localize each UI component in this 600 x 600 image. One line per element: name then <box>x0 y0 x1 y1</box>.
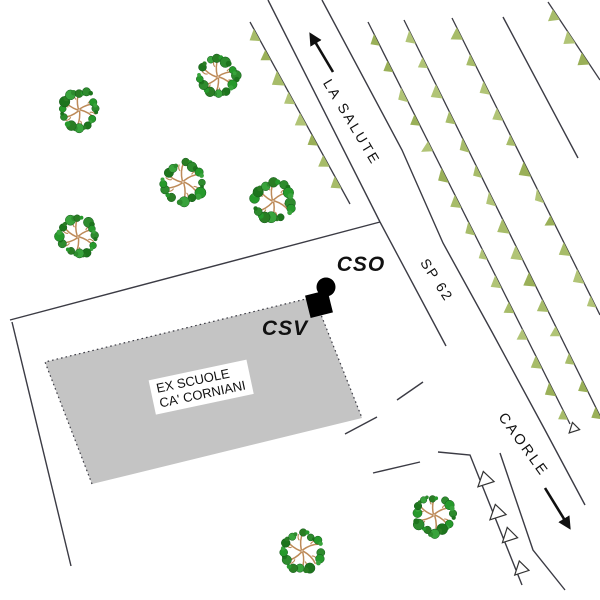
hedge-triangle <box>517 329 528 340</box>
road-and-boundary-lines <box>10 0 585 590</box>
hedge-triangle <box>418 57 428 68</box>
hedge-triangle <box>537 299 549 312</box>
arrow-to-la-salute <box>311 35 333 72</box>
white-triangle <box>511 559 529 575</box>
hedge-triangle <box>465 222 475 236</box>
white-triangle <box>566 421 579 433</box>
driveway-segment-1 <box>397 382 423 400</box>
hedge-triangle <box>431 84 443 98</box>
fence-polyline <box>438 452 522 585</box>
hedge-triangle <box>318 155 329 167</box>
site-label-cso: CSO <box>337 253 386 277</box>
hedge-triangle <box>565 353 575 365</box>
hedge-triangle <box>558 409 568 420</box>
hedge-triangle <box>438 168 449 183</box>
hedge-triangle <box>451 27 463 39</box>
tree-symbol <box>413 496 457 539</box>
hedge-triangle <box>559 242 571 256</box>
site-marker <box>305 278 335 318</box>
tree-symbol <box>250 177 296 222</box>
tree-symbol <box>196 54 241 98</box>
hedge-triangle <box>550 326 561 336</box>
hedge-triangle <box>295 113 307 126</box>
arrow-to-caorle <box>545 488 569 527</box>
hedge-triangle <box>506 135 516 146</box>
tree-symbol <box>280 529 325 574</box>
hedge-triangle <box>261 50 272 60</box>
hedge-triangle <box>545 215 556 225</box>
tree-symbol <box>54 215 98 258</box>
white-triangle <box>486 502 506 520</box>
hedge-triangle <box>398 88 408 103</box>
hedge-triangle <box>492 108 503 121</box>
hedge-triangle <box>535 189 544 204</box>
hedge-triangle <box>531 356 542 369</box>
hedge-triangle <box>383 61 393 72</box>
hedge-triangle <box>523 272 536 286</box>
site-label-csv: CSV <box>262 317 308 341</box>
site-map: LA SALUTE SP 62 CAORLE CSO CSV EX SCUOLE… <box>0 0 600 600</box>
driveway-segment-3 <box>373 462 420 473</box>
hedge-triangle <box>473 165 482 178</box>
tree-symbol <box>160 158 206 207</box>
tree-symbol <box>59 88 99 133</box>
hedge-triangle <box>460 138 470 153</box>
map-linework <box>0 0 600 600</box>
hedge-triangle <box>548 9 560 21</box>
hedge-triangle <box>486 192 496 207</box>
hedge-triangle <box>410 114 420 125</box>
hedge-triangle <box>504 302 515 313</box>
caorle-road-left-edge <box>500 453 565 590</box>
hedge-triangle <box>563 31 575 44</box>
